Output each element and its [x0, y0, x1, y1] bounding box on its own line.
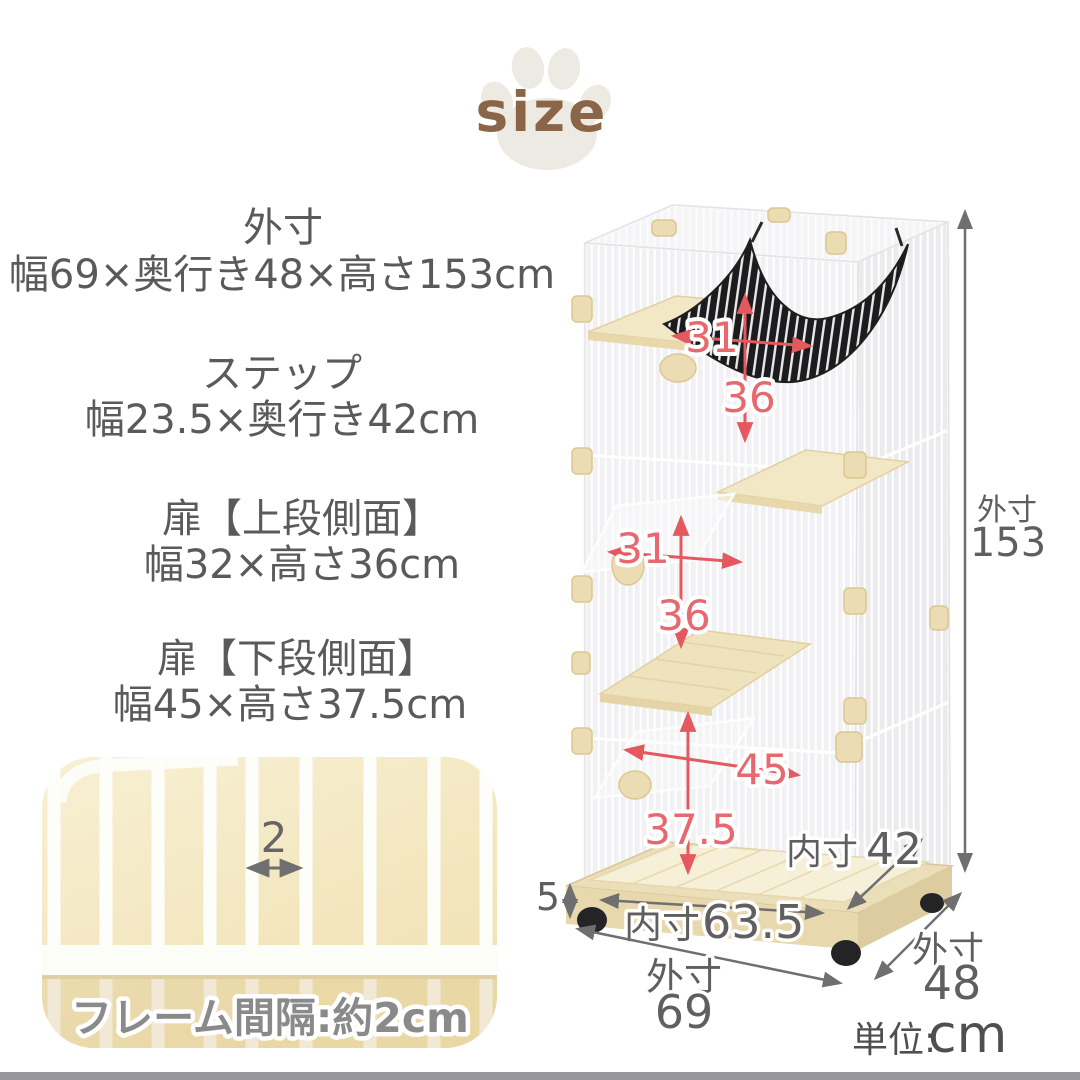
dim-label-outer-height: 153 — [970, 520, 1046, 566]
unit-note: 単位: cm — [852, 1005, 1007, 1065]
inset-caption: フレーム間隔:約2cm — [71, 994, 469, 1042]
frame-gap-inset: 2 フレーム間隔:約2cm — [42, 757, 497, 1048]
dim-label-outer-depth: 48 — [923, 956, 982, 1010]
bottom-divider-strip — [0, 1072, 1080, 1080]
inset-horizontal-rail — [42, 945, 497, 975]
spec-heading-lower-door: 扉【下段側面】 — [157, 636, 437, 682]
spec-heading-step: ステップ — [202, 351, 362, 397]
inset-gap-value: 2 — [261, 813, 288, 862]
spec-detail-upper-door: 幅32×高さ36cm — [144, 542, 460, 588]
dim-label-middle-width: 31 — [616, 524, 669, 573]
spec-heading-outer: 外寸 — [243, 205, 323, 251]
inset-rail-shadow — [42, 975, 497, 979]
dim-label-inner-depth: 42 — [866, 824, 922, 875]
dim-label-top-width: 31 — [685, 313, 738, 362]
spec-detail-lower-door: 幅45×高さ37.5cm — [113, 682, 467, 728]
dim-outer-height: 外寸 153 — [965, 212, 1046, 870]
dim-label-middle-height: 36 — [657, 591, 710, 640]
dim-label-bottom-width: 45 — [735, 745, 788, 794]
dim-label-inner-depth-prefix: 内寸 — [786, 832, 858, 873]
unit-value: cm — [928, 1005, 1007, 1065]
spec-heading-upper-door: 扉【上段側面】 — [162, 496, 442, 542]
paw-logo: size — [475, 45, 617, 170]
dim-label-bottom-height: 37.5 — [644, 805, 738, 854]
dim-label-caster-height: 5 — [536, 875, 560, 919]
dim-caster-height: 5 — [536, 875, 570, 919]
spec-list: 外寸 幅69×奥行き48×高さ153cm ステップ 幅23.5×奥行き42cm … — [9, 205, 555, 728]
dim-label-inner-width: 63.5 — [702, 895, 804, 949]
dim-label-top-height: 36 — [722, 373, 775, 422]
unit-label: 単位: — [852, 1020, 936, 1061]
dim-label-outer-width: 69 — [655, 985, 714, 1039]
spec-detail-outer: 幅69×奥行き48×高さ153cm — [9, 252, 555, 298]
spec-detail-step: 幅23.5×奥行き42cm — [85, 397, 479, 443]
size-title: size — [476, 80, 609, 144]
size-infographic: size 外寸 幅69×奥行き48×高さ153cm ステップ 幅23.5×奥行き… — [0, 0, 1080, 1080]
